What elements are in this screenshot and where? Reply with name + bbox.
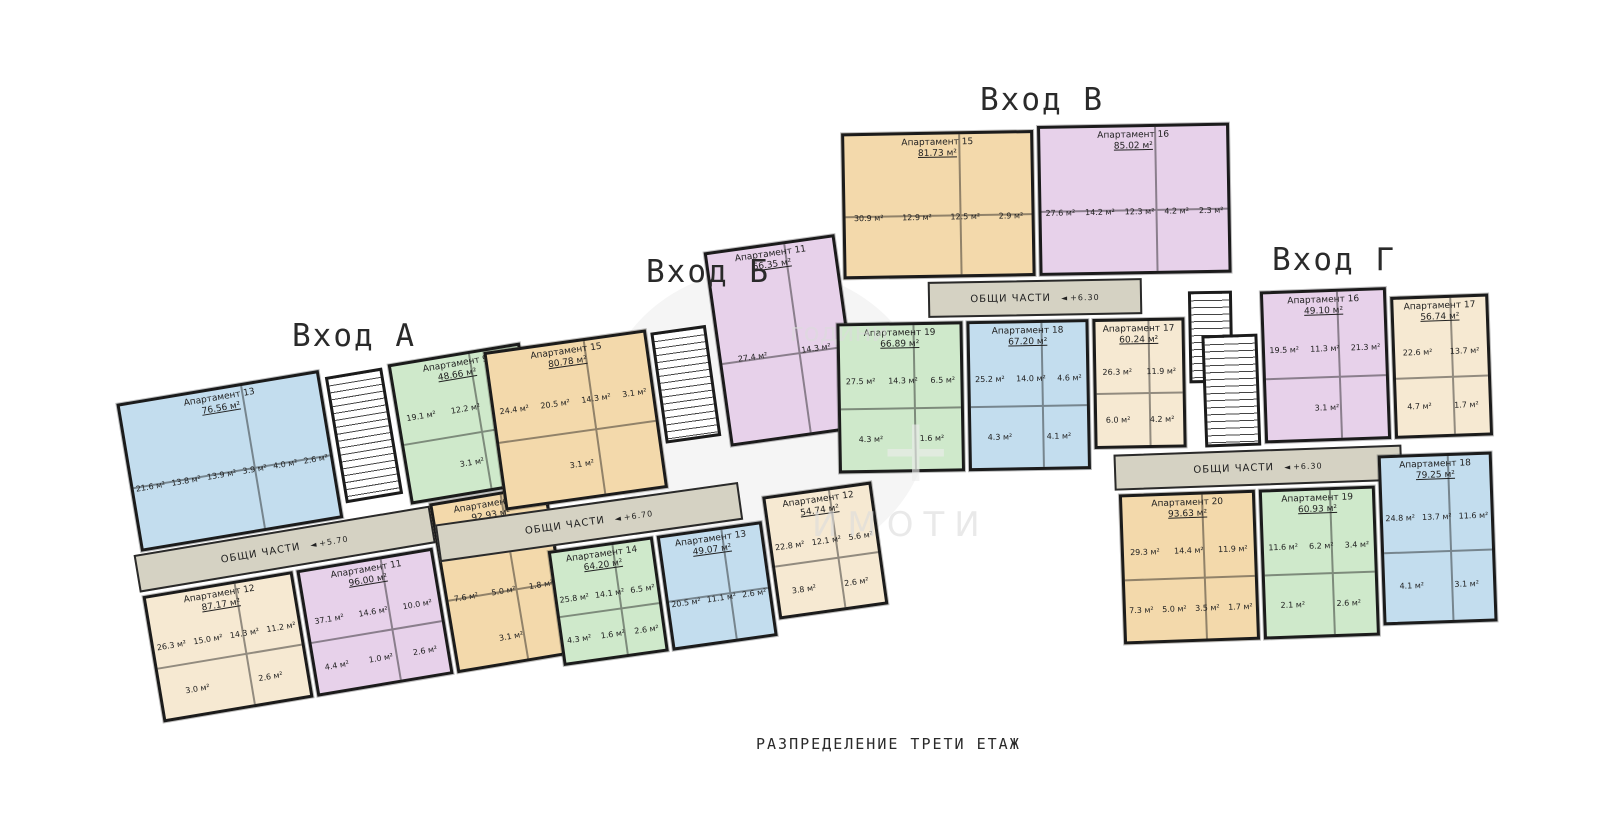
watermark-plus-icon: + bbox=[878, 398, 953, 503]
room-area-label: 24.4 м² bbox=[499, 403, 530, 416]
room-area-label: 3.9 м² bbox=[242, 463, 268, 476]
section-title-vhod-b: Вход Б bbox=[646, 254, 770, 290]
room-area-label: 3.1 м² bbox=[569, 457, 595, 469]
room-area-label: 21.3 м² bbox=[1351, 342, 1381, 352]
elevation-arrow-icon: ◄ bbox=[310, 539, 319, 549]
room-area-label: 14.2 м² bbox=[1085, 208, 1115, 218]
room-area-label: 2.6 м² bbox=[412, 644, 438, 657]
room-area-label: 12.3 м² bbox=[1125, 207, 1155, 217]
room-area-label: 14.3 м² bbox=[888, 376, 918, 386]
room-area-label: 4.1 м² bbox=[1047, 431, 1072, 440]
room-area-label: 6.5 м² bbox=[630, 582, 656, 594]
room-area-label: 2.6 м² bbox=[844, 575, 870, 587]
room-areas: 30.9 м²12.9 м²12.5 м²2.9 м² bbox=[845, 158, 1033, 276]
room-areas: 25.2 м²14.0 м²4.6 м²4.3 м²4.1 м² bbox=[970, 347, 1088, 468]
room-area-label: 12.5 м² bbox=[950, 212, 980, 222]
elevation-mark: ◄ +6.30 bbox=[1284, 461, 1323, 471]
room-area-label: 1.7 м² bbox=[1228, 602, 1253, 612]
room-area-label: 13.7 м² bbox=[1450, 346, 1480, 356]
room-area-label: 20.5 м² bbox=[540, 397, 571, 410]
apartment-block-b15[interactable]: Апартамент 15 80.78 м² 24.4 м²20.5 м²14.… bbox=[483, 329, 668, 510]
room-area-label: 1.6 м² bbox=[600, 628, 626, 640]
room-area-label: 24.8 м² bbox=[1385, 513, 1415, 523]
room-area-label: 27.5 м² bbox=[846, 377, 876, 387]
room-areas: 19.5 м²11.3 м²21.3 м²3.1 м² bbox=[1264, 315, 1388, 440]
room-area-label: 2.6 м² bbox=[258, 670, 284, 683]
apartment-label: Апартамент 16 85.02 м² bbox=[1040, 129, 1226, 154]
room-area-label: 11.2 м² bbox=[266, 620, 297, 634]
apartment-block-b13[interactable]: Апартамент 13 49.07 м² 20.5 м²11.1 м²2.6… bbox=[657, 521, 778, 651]
room-area-label: 6.2 м² bbox=[1309, 541, 1334, 551]
stairwell bbox=[650, 325, 721, 444]
apartment-block-a12[interactable]: Апартамент 12 87.17 м² 26.3 м²15.0 м²14.… bbox=[142, 571, 313, 722]
apartment-block-g17[interactable]: Апартамент 17 56.74 м² 22.6 м²13.7 м²4.7… bbox=[1390, 294, 1493, 439]
apartment-block-g16[interactable]: Апартамент 16 49.10 м² 19.5 м²11.3 м²21.… bbox=[1260, 287, 1391, 443]
apartment-block-v16[interactable]: Апартамент 16 85.02 м² 27.6 м²14.2 м²12.… bbox=[1037, 123, 1232, 276]
watermark-text-imoti: ИМОТИ bbox=[812, 505, 990, 545]
room-area-label: 4.2 м² bbox=[1164, 206, 1189, 215]
elevation-arrow-icon: ◄ bbox=[614, 513, 622, 523]
room-area-label: 12.9 м² bbox=[902, 213, 932, 223]
room-area-label: 2.6 м² bbox=[634, 623, 660, 635]
apartment-block-v15[interactable]: Апартамент 15 81.73 м² 30.9 м²12.9 м²12.… bbox=[841, 130, 1036, 279]
room-area-label: 3.1 м² bbox=[1454, 579, 1479, 589]
drawing-caption: РАЗПРЕДЕЛЕНИЕ ТРЕТИ ЕТАЖ bbox=[756, 735, 1021, 753]
room-area-label: 3.1 м² bbox=[1315, 402, 1340, 412]
section-title-vhod-v: Вход В bbox=[980, 82, 1104, 118]
room-area-label: 25.2 м² bbox=[975, 375, 1005, 385]
room-area-label: 11.9 м² bbox=[1218, 544, 1248, 554]
room-area-label: 19.5 м² bbox=[1269, 345, 1299, 355]
room-areas: 11.6 м²6.2 м²3.4 м²2.1 м²2.6 м² bbox=[1263, 514, 1377, 637]
watermark-text-godini: години bbox=[790, 318, 888, 348]
room-area-label: 15.0 м² bbox=[193, 632, 224, 646]
room-area-label: 26.3 м² bbox=[156, 638, 187, 652]
elevation-mark: ◄ +6.30 bbox=[1061, 292, 1100, 302]
room-area-label: 27.6 м² bbox=[1045, 208, 1075, 218]
room-area-label: 6.5 м² bbox=[930, 375, 955, 384]
room-area-label: 7.3 м² bbox=[1129, 605, 1154, 615]
room-area-label: 1.7 м² bbox=[1454, 400, 1479, 410]
room-area-label: 22.6 м² bbox=[1403, 347, 1433, 357]
wing-vhod-b: ОБЩИ ЧАСТИ ◄ +6.70 Апартамент 15 80.78 м… bbox=[402, 229, 898, 691]
room-area-label: 22.8 м² bbox=[774, 539, 805, 552]
room-areas: 22.6 м²13.7 м²4.7 м²1.7 м² bbox=[1394, 322, 1490, 436]
apartment-label: Апартамент 18 67.20 м² bbox=[969, 325, 1085, 349]
room-area-label: 14.1 м² bbox=[594, 586, 625, 599]
room-area-label: 4.4 м² bbox=[324, 659, 350, 672]
room-area-label: 4.6 м² bbox=[1057, 373, 1082, 382]
room-area-label: 27.4 м² bbox=[737, 351, 768, 364]
room-area-label: 10.0 м² bbox=[402, 597, 433, 611]
apartment-label: Апартамент 17 56.74 м² bbox=[1393, 300, 1486, 325]
room-area-label: 4.3 м² bbox=[988, 432, 1013, 441]
room-area-label: 4.1 м² bbox=[1399, 581, 1424, 591]
room-areas: 27.6 м²14.2 м²12.3 м²4.2 м²2.3 м² bbox=[1040, 151, 1228, 273]
room-area-label: 3.0 м² bbox=[185, 682, 211, 695]
room-area-label: 3.1 м² bbox=[622, 386, 648, 398]
room-area-label: 14.3 м² bbox=[581, 391, 612, 404]
room-area-label: 14.4 м² bbox=[1174, 546, 1204, 556]
room-area-label: 14.6 м² bbox=[358, 604, 389, 618]
common-area-label: ОБЩИ ЧАСТИ bbox=[220, 541, 301, 565]
apartment-label: Апартамент 15 81.73 м² bbox=[844, 136, 1030, 161]
room-areas: 29.3 м²14.4 м²11.9 м²7.3 м²5.0 м²3.5 м²1… bbox=[1123, 518, 1257, 641]
common-area-corridor: ОБЩИ ЧАСТИ ◄ +6.30 bbox=[1113, 445, 1402, 491]
room-areas: 37.1 м²14.6 м²10.0 м²4.4 м²1.0 м²2.6 м² bbox=[304, 576, 450, 693]
room-area-label: 20.5 м² bbox=[671, 596, 702, 609]
section-title-vhod-a: Вход А bbox=[292, 318, 416, 354]
room-area-label: 4.7 м² bbox=[1407, 402, 1432, 412]
section-title-vhod-g: Вход Г bbox=[1272, 242, 1396, 278]
room-area-label: 37.1 м² bbox=[314, 612, 345, 626]
wing-vhod-g: ОБЩИ ЧАСТИ ◄ +6.30 Апартамент 16 49.10 м… bbox=[1107, 269, 1502, 662]
room-areas: 24.8 м²13.7 м²11.6 м²4.1 м²3.1 м² bbox=[1382, 480, 1495, 623]
apartment-block-g20[interactable]: Апартамент 20 93.63 м² 29.3 м²14.4 м²11.… bbox=[1119, 490, 1260, 645]
room-areas: 25.8 м²14.1 м²6.5 м²4.3 м²1.6 м²2.6 м² bbox=[555, 565, 666, 663]
room-area-label: 5.0 м² bbox=[1162, 604, 1187, 614]
room-area-label: 3.8 м² bbox=[791, 583, 817, 595]
room-area-label: 25.8 м² bbox=[559, 591, 590, 604]
room-area-label: 2.3 м² bbox=[1199, 206, 1224, 215]
room-area-label: 29.3 м² bbox=[1130, 547, 1160, 557]
room-area-label: 11.3 м² bbox=[1310, 343, 1340, 353]
elevation-arrow-icon: ◄ bbox=[1284, 462, 1291, 471]
elevation-mark: ◄ +6.70 bbox=[614, 509, 654, 523]
room-areas: 20.5 м²11.1 м²2.6 м² bbox=[663, 549, 774, 647]
room-areas: 24.4 м²20.5 м²14.3 м²3.1 м²3.1 м² bbox=[490, 357, 664, 507]
apartment-block-v18[interactable]: Апартамент 18 67.20 м² 25.2 м²14.0 м²4.6… bbox=[966, 319, 1091, 471]
common-area-label: ОБЩИ ЧАСТИ bbox=[970, 292, 1051, 304]
room-area-label: 13.8 м² bbox=[171, 474, 202, 488]
common-area-label: ОБЩИ ЧАСТИ bbox=[524, 514, 605, 536]
room-area-label: 2.1 м² bbox=[1280, 600, 1305, 610]
elevation-arrow-icon: ◄ bbox=[1061, 293, 1068, 302]
room-area-label: 14.0 м² bbox=[1016, 374, 1046, 384]
room-area-label: 3.5 м² bbox=[1195, 603, 1220, 613]
room-area-label: 21.6 м² bbox=[135, 480, 166, 494]
room-area-label: 2.6 м² bbox=[303, 453, 329, 466]
room-area-label: 2.6 м² bbox=[1336, 598, 1361, 608]
apartment-block-g19[interactable]: Апартамент 19 60.93 м² 11.6 м²6.2 м²3.4 … bbox=[1259, 486, 1380, 640]
room-area-label: 30.9 м² bbox=[854, 214, 884, 224]
apartment-block-b14[interactable]: Апартамент 14 64.20 м² 25.8 м²14.1 м²6.5… bbox=[548, 536, 669, 666]
room-area-label: 1.0 м² bbox=[368, 651, 394, 664]
room-area-label: 2.9 м² bbox=[999, 211, 1024, 220]
apartment-block-g18[interactable]: Апартамент 18 79.25 м² 24.8 м²13.7 м²11.… bbox=[1378, 451, 1498, 625]
room-area-label: 13.9 м² bbox=[206, 468, 237, 482]
stairwell bbox=[1201, 334, 1261, 448]
apartment-block-b12[interactable]: Апартамент 12 54.74 м² 22.8 м²12.1 м²5.6… bbox=[762, 481, 888, 619]
room-area-label: 11.6 м² bbox=[1459, 511, 1489, 521]
room-area-label: 4.3 м² bbox=[566, 632, 592, 644]
apartment-block-a11[interactable]: Апартамент 11 96.00 м² 37.1 м²14.6 м²10.… bbox=[296, 548, 453, 697]
room-area-label: 11.6 м² bbox=[1268, 542, 1298, 552]
room-area-label: 3.4 м² bbox=[1345, 540, 1370, 550]
room-area-label: 2.6 м² bbox=[741, 587, 767, 599]
room-area-label: 13.7 м² bbox=[1422, 512, 1452, 522]
room-area-label: 11.1 м² bbox=[706, 591, 737, 604]
room-area-label: 14.3 м² bbox=[229, 626, 260, 640]
common-area-label: ОБЩИ ЧАСТИ bbox=[1193, 462, 1274, 476]
apartment-block-a13[interactable]: Апартамент 13 76.56 м² 21.6 м²13.8 м²13.… bbox=[116, 370, 343, 552]
elevation-mark: ◄ +5.70 bbox=[310, 534, 350, 549]
room-area-label: 4.0 м² bbox=[272, 458, 298, 471]
